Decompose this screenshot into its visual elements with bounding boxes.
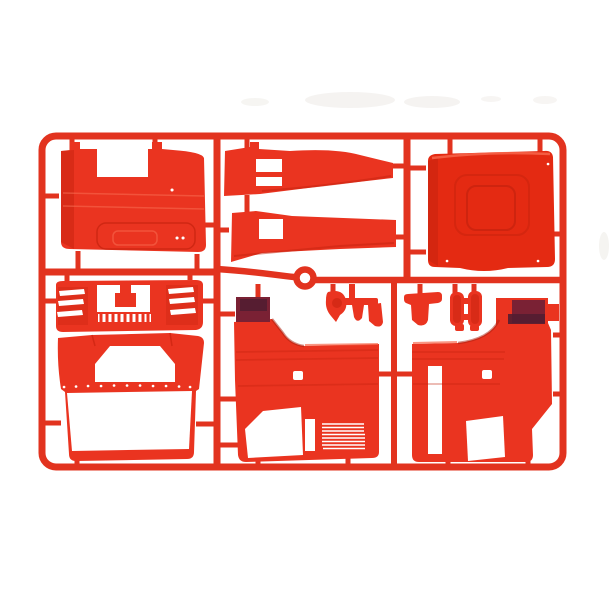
- front-windshield-panel-part: [58, 333, 204, 461]
- rear-cab-panel-part: [428, 151, 555, 271]
- mirror-housing-core: [332, 298, 342, 308]
- hinge-link-top: [462, 298, 470, 304]
- left-panel-handle-recess: [293, 371, 303, 380]
- hinge-shade-right: [471, 294, 479, 324]
- left-panel-deflector-core: [240, 299, 267, 311]
- bracket-bar: [344, 298, 378, 305]
- right-panel-deflector-band: [508, 314, 545, 324]
- rear-panel-body: [428, 151, 555, 271]
- front-panel-center-cutout: [95, 346, 175, 382]
- right-panel-handle-recess: [482, 370, 492, 379]
- rear-panel-left-shade: [428, 158, 438, 266]
- front-grille-panel-part: [56, 280, 203, 332]
- hinge-foot-left: [455, 324, 464, 331]
- grille-right-louvers: [168, 287, 196, 315]
- right-panel-frame-tab: [547, 304, 559, 321]
- sprue-photo-svg: [0, 0, 610, 610]
- left-panel-top-highlight: [305, 344, 378, 345]
- right-panel-top-highlight: [413, 342, 457, 343]
- left-panel-slot-cutout: [305, 419, 315, 451]
- grille-left-louvers: [57, 289, 85, 317]
- bracket-stem: [349, 284, 355, 298]
- hinge-link-bottom: [462, 314, 470, 320]
- hinge-shade-left: [453, 295, 461, 323]
- product-photo: [0, 0, 610, 610]
- windshield-opening: [67, 391, 192, 451]
- roof-panel-shade: [61, 150, 74, 249]
- right-panel-pillar-slot: [428, 366, 442, 454]
- right-panel-window-cutout: [466, 416, 505, 461]
- injection-ring: [297, 270, 314, 287]
- lower-sill-hole: [259, 219, 283, 239]
- hinge-foot-right: [470, 325, 479, 331]
